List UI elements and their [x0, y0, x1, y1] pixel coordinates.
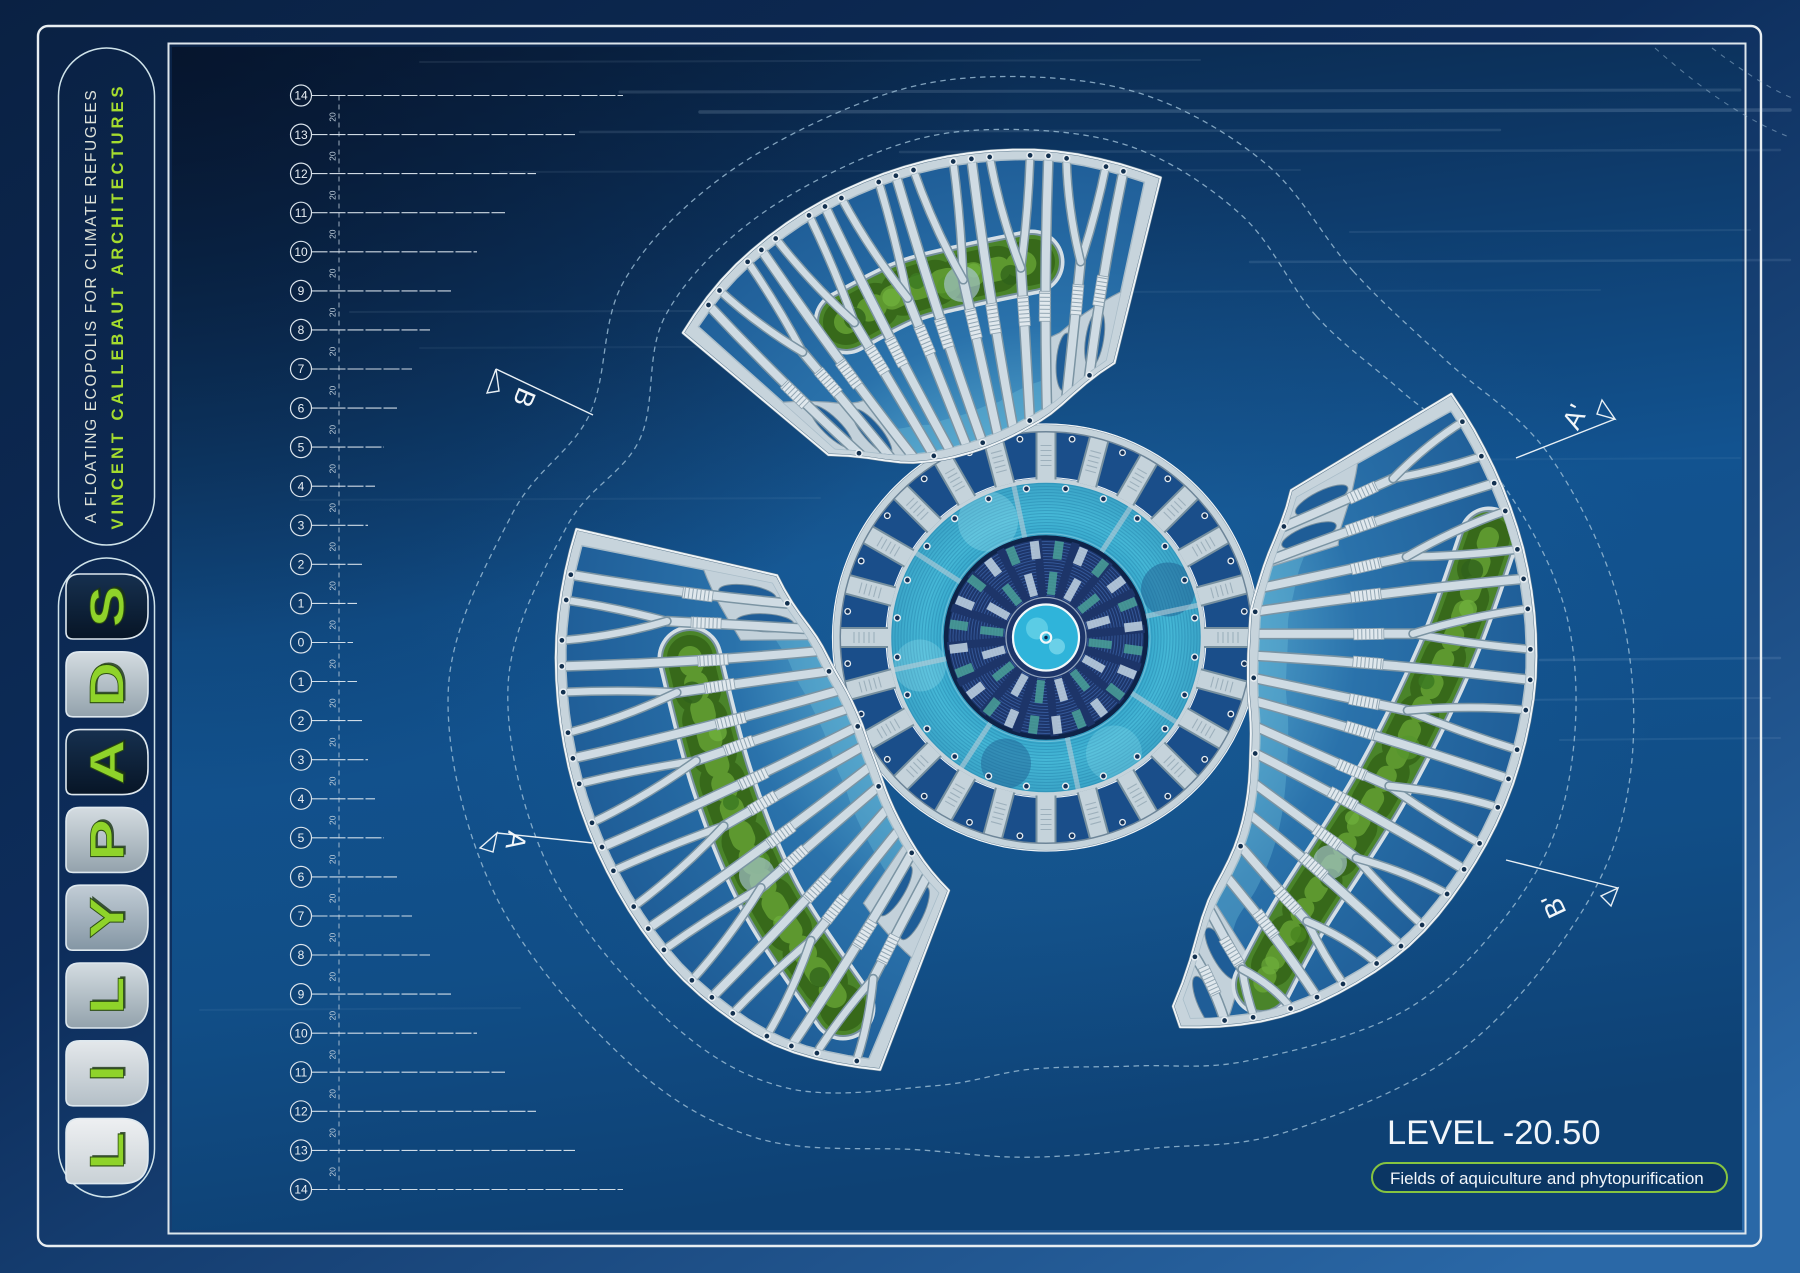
- svg-text:2: 2: [298, 558, 305, 572]
- svg-text:20: 20: [328, 972, 338, 982]
- svg-text:8: 8: [298, 323, 305, 337]
- svg-text:10: 10: [294, 1026, 308, 1040]
- svg-text:1: 1: [298, 597, 305, 611]
- svg-text:20: 20: [328, 581, 338, 591]
- svg-text:7: 7: [298, 362, 305, 376]
- svg-text:3: 3: [298, 519, 305, 533]
- svg-text:4: 4: [298, 479, 305, 493]
- svg-text:9: 9: [298, 284, 305, 298]
- svg-text:5: 5: [298, 440, 305, 454]
- svg-text:11: 11: [295, 1066, 308, 1080]
- svg-text:20: 20: [328, 776, 338, 786]
- svg-text:4: 4: [298, 792, 305, 806]
- svg-text:20: 20: [328, 425, 338, 435]
- svg-text:20: 20: [328, 229, 338, 239]
- svg-text:20: 20: [328, 815, 338, 825]
- svg-text:14: 14: [294, 1183, 308, 1197]
- svg-text:20: 20: [328, 112, 338, 122]
- svg-text:0: 0: [298, 636, 305, 650]
- svg-text:20: 20: [328, 190, 338, 200]
- svg-text:20: 20: [328, 854, 338, 864]
- svg-text:12: 12: [294, 167, 308, 181]
- svg-text:1: 1: [298, 675, 305, 689]
- svg-text:20: 20: [328, 893, 338, 903]
- svg-text:20: 20: [328, 307, 338, 317]
- svg-text:S: S: [80, 586, 133, 628]
- svg-text:13: 13: [294, 1144, 308, 1158]
- svg-text:14: 14: [294, 89, 308, 103]
- svg-text:20: 20: [328, 1050, 338, 1060]
- svg-text:6: 6: [298, 401, 305, 415]
- svg-text:Y: Y: [80, 897, 133, 939]
- svg-text:20: 20: [328, 268, 338, 278]
- svg-text:20: 20: [328, 698, 338, 708]
- svg-text:20: 20: [328, 503, 338, 513]
- svg-text:3: 3: [298, 753, 305, 767]
- svg-text:9: 9: [298, 987, 305, 1001]
- svg-text:20: 20: [328, 620, 338, 630]
- svg-text:20: 20: [328, 386, 338, 396]
- svg-text:20: 20: [328, 151, 338, 161]
- svg-text:20: 20: [328, 737, 338, 747]
- svg-text:8: 8: [298, 948, 305, 962]
- svg-text:20: 20: [328, 1128, 338, 1138]
- svg-text:6: 6: [298, 870, 305, 884]
- svg-text:12: 12: [294, 1105, 308, 1119]
- svg-text:Fields of aquiculture and phyt: Fields of aquiculture and phytopurificat…: [1390, 1169, 1704, 1188]
- svg-text:LEVEL -20.50: LEVEL -20.50: [1387, 1114, 1601, 1152]
- svg-text:13: 13: [294, 128, 308, 142]
- svg-text:2: 2: [298, 714, 305, 728]
- svg-text:I: I: [80, 1065, 133, 1082]
- svg-text:D: D: [80, 662, 133, 707]
- svg-text:20: 20: [328, 542, 338, 552]
- svg-text:20: 20: [328, 464, 338, 474]
- svg-text:20: 20: [328, 1011, 338, 1021]
- svg-text:20: 20: [328, 347, 338, 357]
- svg-text:10: 10: [294, 245, 308, 259]
- svg-text:A FLOATING ECOPOLIS FOR CLIMAT: A FLOATING ECOPOLIS FOR CLIMATE REFUGEES: [83, 89, 100, 524]
- svg-text:A: A: [80, 740, 133, 785]
- svg-text:20: 20: [328, 933, 338, 943]
- svg-text:L: L: [80, 976, 133, 1014]
- svg-text:L: L: [80, 1132, 133, 1170]
- svg-text:7: 7: [298, 909, 305, 923]
- svg-text:20: 20: [328, 1089, 338, 1099]
- svg-text:20: 20: [328, 659, 338, 669]
- svg-text:11: 11: [295, 206, 308, 220]
- svg-text:20: 20: [328, 1167, 338, 1177]
- svg-text:P: P: [80, 819, 133, 861]
- svg-text:5: 5: [298, 831, 305, 845]
- svg-text:VINCENT CALLEBAUT ARCHITECTURE: VINCENT CALLEBAUT ARCHITECTURES: [109, 83, 127, 530]
